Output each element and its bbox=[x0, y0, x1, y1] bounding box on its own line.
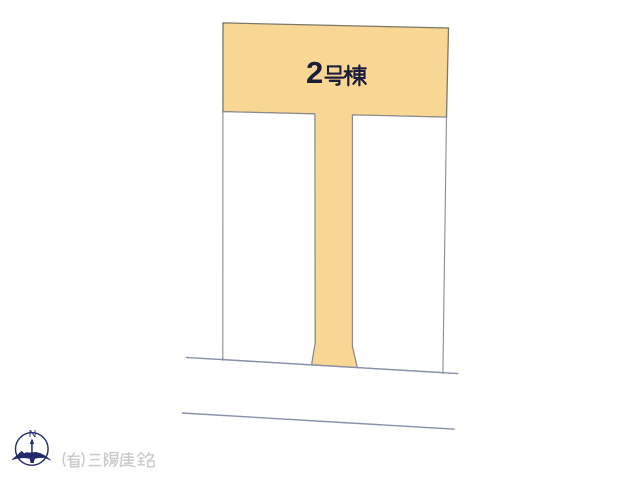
svg-text:N: N bbox=[29, 428, 37, 440]
svg-text:2: 2 bbox=[306, 55, 323, 90]
